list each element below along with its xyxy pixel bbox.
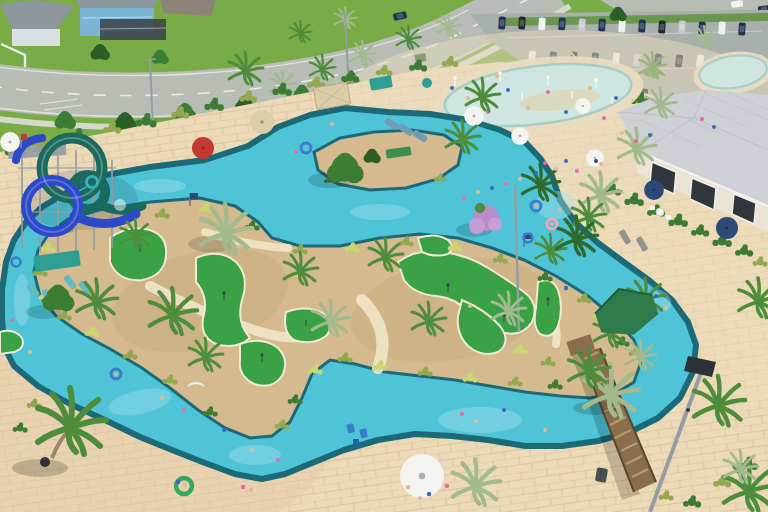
- mushroom-shower: [422, 78, 432, 88]
- scene-canvas: [0, 0, 768, 512]
- house-blue: [76, 0, 166, 40]
- splash-foam: [114, 199, 126, 211]
- aerial-resort-photo: [0, 0, 768, 512]
- screened-lanai: [100, 19, 166, 40]
- car: [731, 0, 744, 8]
